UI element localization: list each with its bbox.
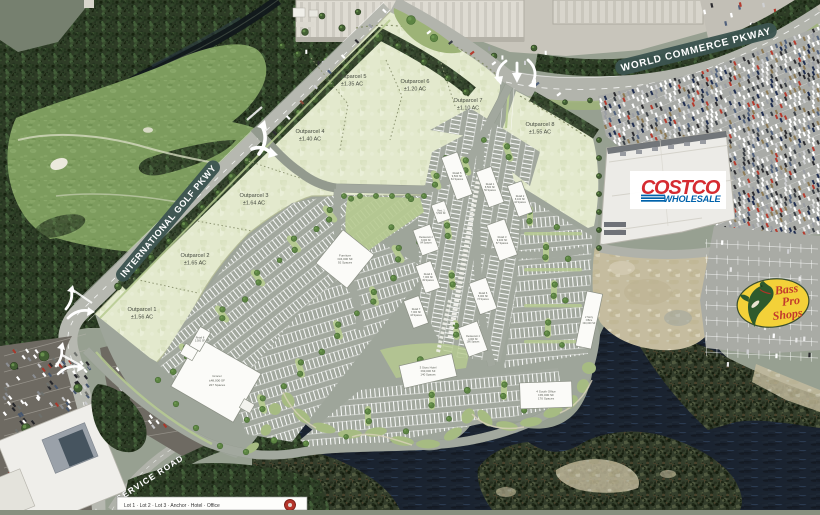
- svg-text:57 Spaces: 57 Spaces: [496, 241, 509, 245]
- svg-text:±1.20 AC: ±1.20 AC: [404, 87, 426, 93]
- svg-text:Outparcel 2: Outparcel 2: [181, 253, 210, 259]
- svg-text:140 Spaces: 140 Spaces: [420, 372, 436, 376]
- svg-text:92 Spaces: 92 Spaces: [338, 261, 353, 265]
- svg-text:±1.35 AC: ±1.35 AC: [341, 82, 363, 88]
- svg-text:Outparcel 3: Outparcel 3: [240, 193, 269, 199]
- svg-text:43 Spaces: 43 Spaces: [410, 314, 423, 317]
- svg-text:±1.40 AC: ±1.40 AC: [299, 137, 321, 143]
- svg-text:±1.56 AC: ±1.56 AC: [131, 315, 153, 321]
- svg-text:Outparcel 7: Outparcel 7: [454, 98, 483, 104]
- svg-text:±1.65 AC: ±1.65 AC: [184, 261, 206, 267]
- svg-text:84 Spaces: 84 Spaces: [420, 242, 432, 245]
- svg-text:Outparcel 5: Outparcel 5: [338, 74, 367, 80]
- svg-text:170 Spaces: 170 Spaces: [538, 397, 555, 401]
- svg-text:227 Spaces: 227 Spaces: [209, 383, 226, 387]
- svg-text:WHOLESALE: WHOLESALE: [664, 194, 722, 204]
- svg-text:±40,000 SF: ±40,000 SF: [583, 322, 596, 325]
- svg-text:3,500 SF: 3,500 SF: [195, 339, 206, 342]
- svg-text:5,500 SF: 5,500 SF: [436, 213, 446, 215]
- svg-text:50 Spaces: 50 Spaces: [484, 189, 497, 192]
- svg-text:±1.64 AC: ±1.64 AC: [243, 201, 265, 207]
- svg-text:Outparcel 8: Outparcel 8: [526, 122, 555, 128]
- svg-text:Outparcel 1: Outparcel 1: [128, 307, 157, 313]
- svg-text:Outparcel 6: Outparcel 6: [401, 79, 430, 85]
- svg-text:±1.10 AC: ±1.10 AC: [457, 106, 479, 112]
- svg-text:Grocer: Grocer: [212, 374, 221, 378]
- svg-text:Rest. 1: Rest. 1: [437, 209, 445, 212]
- svg-text:±48,000 SF: ±48,000 SF: [209, 379, 225, 383]
- svg-text:64 Spaces: 64 Spaces: [451, 177, 464, 181]
- svg-text:Outparcel 4: Outparcel 4: [296, 129, 325, 135]
- svg-text:186 Spaces: 186 Spaces: [467, 341, 480, 344]
- svg-text:±1.55 AC: ±1.55 AC: [529, 130, 551, 136]
- svg-text:44 Spaces: 44 Spaces: [514, 201, 527, 204]
- svg-text:49 Spaces: 49 Spaces: [422, 279, 435, 282]
- svg-text:Lot 1 · Lot 2 · Lot 3 · Anchor: Lot 1 · Lot 2 · Lot 3 · Anchor · Hotel ·…: [124, 503, 220, 509]
- svg-text:73 Spaces: 73 Spaces: [477, 298, 490, 301]
